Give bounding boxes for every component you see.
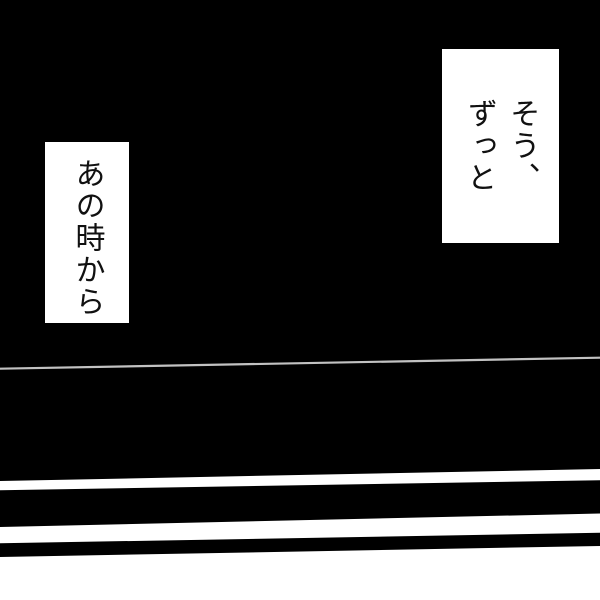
caption-text-vertical: そう、 ずっと [458, 98, 544, 194]
caption-box-top-right: そう、 ずっと [442, 49, 559, 243]
caption-text-vertical: あの時から [66, 158, 109, 318]
caption-line: そう、 [501, 98, 544, 194]
caption-line: あの時から [66, 158, 109, 318]
manga-panel: そう、 ずっと あの時から [0, 0, 600, 600]
thin-speed-line [0, 357, 600, 370]
caption-line: ずっと [458, 98, 501, 194]
white-stripe [0, 469, 600, 490]
caption-box-left: あの時から [45, 142, 129, 323]
bottom-white-area [0, 514, 600, 600]
